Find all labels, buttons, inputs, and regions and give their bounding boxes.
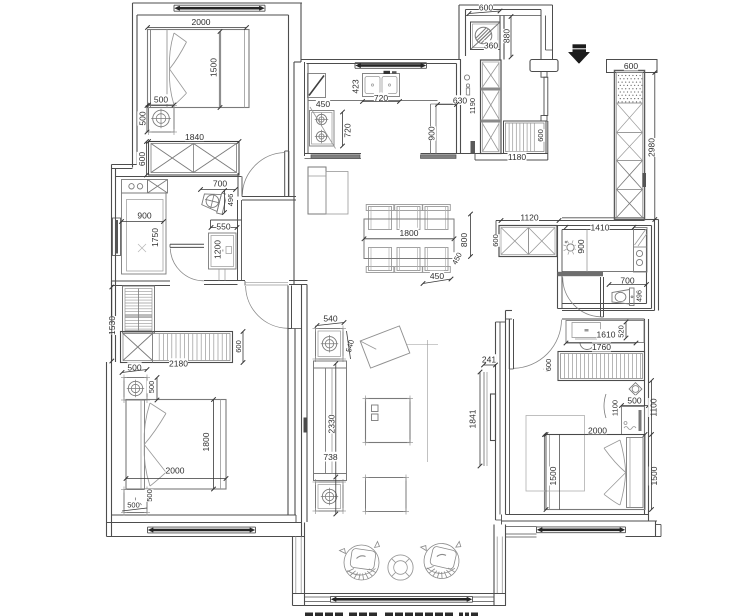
- svg-text:2180: 2180: [169, 359, 188, 369]
- svg-text:720: 720: [343, 123, 353, 137]
- svg-text:550: 550: [216, 222, 230, 232]
- svg-text:1410: 1410: [591, 222, 610, 232]
- svg-text:700: 700: [620, 276, 634, 286]
- svg-text:2000: 2000: [588, 426, 607, 436]
- svg-text:1190: 1190: [468, 98, 477, 114]
- svg-text:900: 900: [427, 126, 437, 140]
- svg-text:360: 360: [484, 41, 498, 51]
- svg-text:1760: 1760: [592, 342, 611, 352]
- svg-text:500: 500: [138, 111, 148, 125]
- svg-text:2330: 2330: [327, 414, 337, 433]
- svg-text:500: 500: [145, 489, 154, 502]
- svg-text:600: 600: [137, 152, 147, 166]
- svg-text:1500: 1500: [209, 58, 219, 77]
- svg-text:1800: 1800: [201, 432, 211, 451]
- svg-text:450: 450: [430, 271, 444, 281]
- svg-text:500: 500: [154, 95, 168, 105]
- svg-text:1120: 1120: [520, 213, 539, 223]
- svg-text:600: 600: [544, 359, 553, 372]
- svg-text:600: 600: [624, 61, 638, 71]
- svg-text:1500: 1500: [548, 466, 558, 485]
- svg-text:496: 496: [637, 290, 644, 302]
- svg-text:423: 423: [351, 79, 361, 93]
- svg-text:1841: 1841: [468, 409, 478, 428]
- svg-text:1840: 1840: [185, 132, 204, 142]
- svg-text:900: 900: [137, 211, 151, 221]
- svg-text:540: 540: [323, 314, 337, 324]
- svg-text:500: 500: [147, 381, 156, 394]
- svg-text:1610: 1610: [597, 330, 616, 340]
- svg-text:800: 800: [459, 233, 469, 247]
- svg-text:880: 880: [502, 29, 512, 43]
- svg-text:900: 900: [576, 239, 586, 253]
- svg-text:600: 600: [234, 340, 243, 353]
- svg-text:2000: 2000: [166, 466, 185, 476]
- svg-text:450: 450: [316, 99, 330, 109]
- svg-text:241: 241: [482, 355, 496, 365]
- svg-text:1500: 1500: [649, 466, 659, 485]
- svg-text:1200: 1200: [213, 240, 223, 259]
- svg-text:600: 600: [536, 129, 545, 142]
- svg-text:738: 738: [323, 452, 337, 462]
- svg-text:600: 600: [479, 3, 493, 13]
- svg-text:1180: 1180: [508, 152, 527, 162]
- svg-text:1100: 1100: [611, 400, 620, 416]
- svg-text:700: 700: [213, 179, 227, 189]
- svg-text:2000: 2000: [192, 17, 211, 27]
- svg-text:500: 500: [627, 396, 641, 406]
- svg-text:600: 600: [491, 234, 500, 247]
- svg-text:500: 500: [127, 501, 140, 510]
- svg-text:1800: 1800: [400, 228, 419, 238]
- svg-text:520: 520: [617, 325, 626, 338]
- svg-text:1750: 1750: [150, 228, 160, 247]
- svg-text:1100: 1100: [649, 398, 659, 417]
- svg-text:630: 630: [453, 96, 467, 106]
- svg-text:2980: 2980: [647, 138, 657, 157]
- svg-text:496: 496: [226, 194, 235, 207]
